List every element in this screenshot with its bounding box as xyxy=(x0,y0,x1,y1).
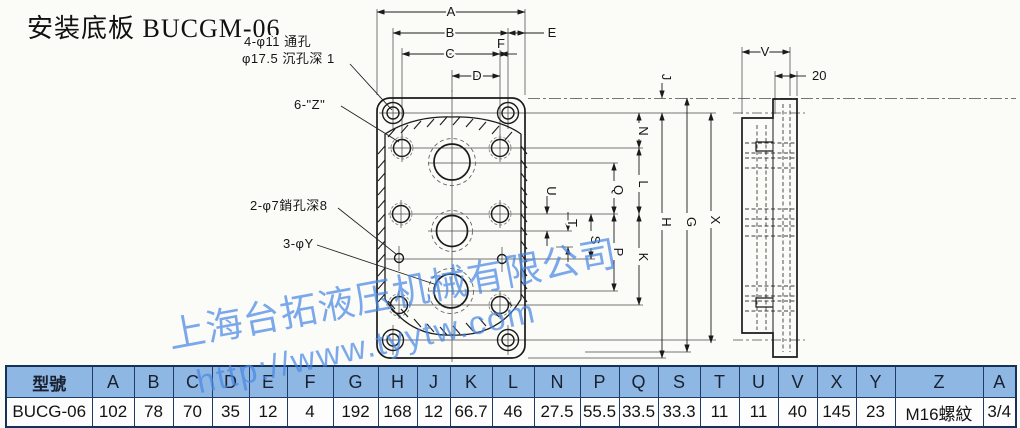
cell-q: 33.5 xyxy=(619,398,658,428)
header-h: H xyxy=(378,366,417,398)
cell-n: 27.5 xyxy=(534,398,580,428)
header-e: E xyxy=(249,366,287,398)
cell-d: 35 xyxy=(212,398,249,428)
dim-label-p: P xyxy=(611,248,626,257)
cell-c: 70 xyxy=(173,398,212,428)
header-n: N xyxy=(534,366,580,398)
header-p: P xyxy=(580,366,619,398)
header-a2: A xyxy=(983,366,1016,398)
table-header-row: 型號 A B C D E F G H J K L N P Q S T U V X… xyxy=(6,366,1016,398)
header-t: T xyxy=(700,366,739,398)
header-q: Q xyxy=(619,366,658,398)
side-view xyxy=(742,99,797,357)
cell-t: 11 xyxy=(700,398,739,428)
dim-label-a: A xyxy=(447,4,456,19)
header-g: G xyxy=(333,366,378,398)
header-u: U xyxy=(739,366,778,398)
cell-h: 168 xyxy=(378,398,417,428)
header-f: F xyxy=(287,366,333,398)
header-model: 型號 xyxy=(6,366,92,398)
dim-label-t: T xyxy=(565,219,580,227)
cell-v: 40 xyxy=(778,398,817,428)
dim-label-d: D xyxy=(472,68,481,83)
dim-label-u: U xyxy=(544,186,559,195)
header-z: Z xyxy=(895,366,983,398)
cell-y: 23 xyxy=(856,398,895,428)
drawing-page: 安装底板 BUCGM-06 xyxy=(0,0,1020,428)
dim-label-e: E xyxy=(548,25,557,40)
dim-label-l: L xyxy=(636,180,651,187)
dim-label-b: B xyxy=(446,25,455,40)
dim-label-h: H xyxy=(659,217,674,226)
header-v: V xyxy=(778,366,817,398)
technical-drawing: 4-φ11 通孔 φ17.5 沉孔深 1 6-"Z" 2-φ7銷孔深8 3-φY… xyxy=(0,0,1020,365)
dim-label-g: G xyxy=(684,217,699,227)
header-a: A xyxy=(92,366,134,398)
cell-b: 78 xyxy=(134,398,173,428)
dim-label-20: 20 xyxy=(812,68,826,83)
dim-label-k: K xyxy=(636,253,651,262)
construction-lines xyxy=(377,9,1016,362)
cell-p: 55.5 xyxy=(580,398,619,428)
cell-s: 33.3 xyxy=(658,398,700,428)
cell-a: 102 xyxy=(92,398,134,428)
cell-u: 11 xyxy=(739,398,778,428)
cell-a2: 3/4 xyxy=(983,398,1016,428)
cell-l: 46 xyxy=(492,398,534,428)
dim-label-c: C xyxy=(445,46,454,61)
header-k: K xyxy=(450,366,492,398)
note-thread-z: 6-"Z" xyxy=(294,97,325,112)
cell-g: 192 xyxy=(333,398,378,428)
note-port-y: 3-φY xyxy=(283,236,314,251)
header-s: S xyxy=(658,366,700,398)
cell-k: 66.7 xyxy=(450,398,492,428)
cell-j: 12 xyxy=(417,398,450,428)
header-j: J xyxy=(417,366,450,398)
cell-model: BUCG-06 xyxy=(6,398,92,428)
dim-label-j: J xyxy=(659,74,674,81)
dim-label-n: N xyxy=(636,126,651,135)
header-x: X xyxy=(817,366,856,398)
dim-label-x: X xyxy=(708,216,723,225)
table-value-row: BUCG-06 102 78 70 35 12 4 192 168 12 66.… xyxy=(6,398,1016,428)
header-l: L xyxy=(492,366,534,398)
cell-z: M16螺紋 xyxy=(895,398,983,428)
drawing-labels: 4-φ11 通孔 φ17.5 沉孔深 1 6-"Z" 2-φ7銷孔深8 3-φY… xyxy=(242,4,826,262)
note-pin-holes: 2-φ7銷孔深8 xyxy=(250,198,327,213)
dim-label-f: F xyxy=(497,36,505,51)
hatch-ticks xyxy=(378,117,527,335)
dimension-table: 型號 A B C D E F G H J K L N P Q S T U V X… xyxy=(5,365,1017,428)
dim-label-s: S xyxy=(588,236,603,245)
cell-f: 4 xyxy=(287,398,333,428)
cell-x: 145 xyxy=(817,398,856,428)
note-counterbore: φ17.5 沉孔深 1 xyxy=(242,51,335,66)
header-y: Y xyxy=(856,366,895,398)
header-d: D xyxy=(212,366,249,398)
header-c: C xyxy=(173,366,212,398)
dim-label-q: Q xyxy=(611,185,626,195)
header-b: B xyxy=(134,366,173,398)
dim-label-v: V xyxy=(761,44,770,59)
cell-e: 12 xyxy=(249,398,287,428)
note-through-holes: 4-φ11 通孔 xyxy=(244,34,311,49)
